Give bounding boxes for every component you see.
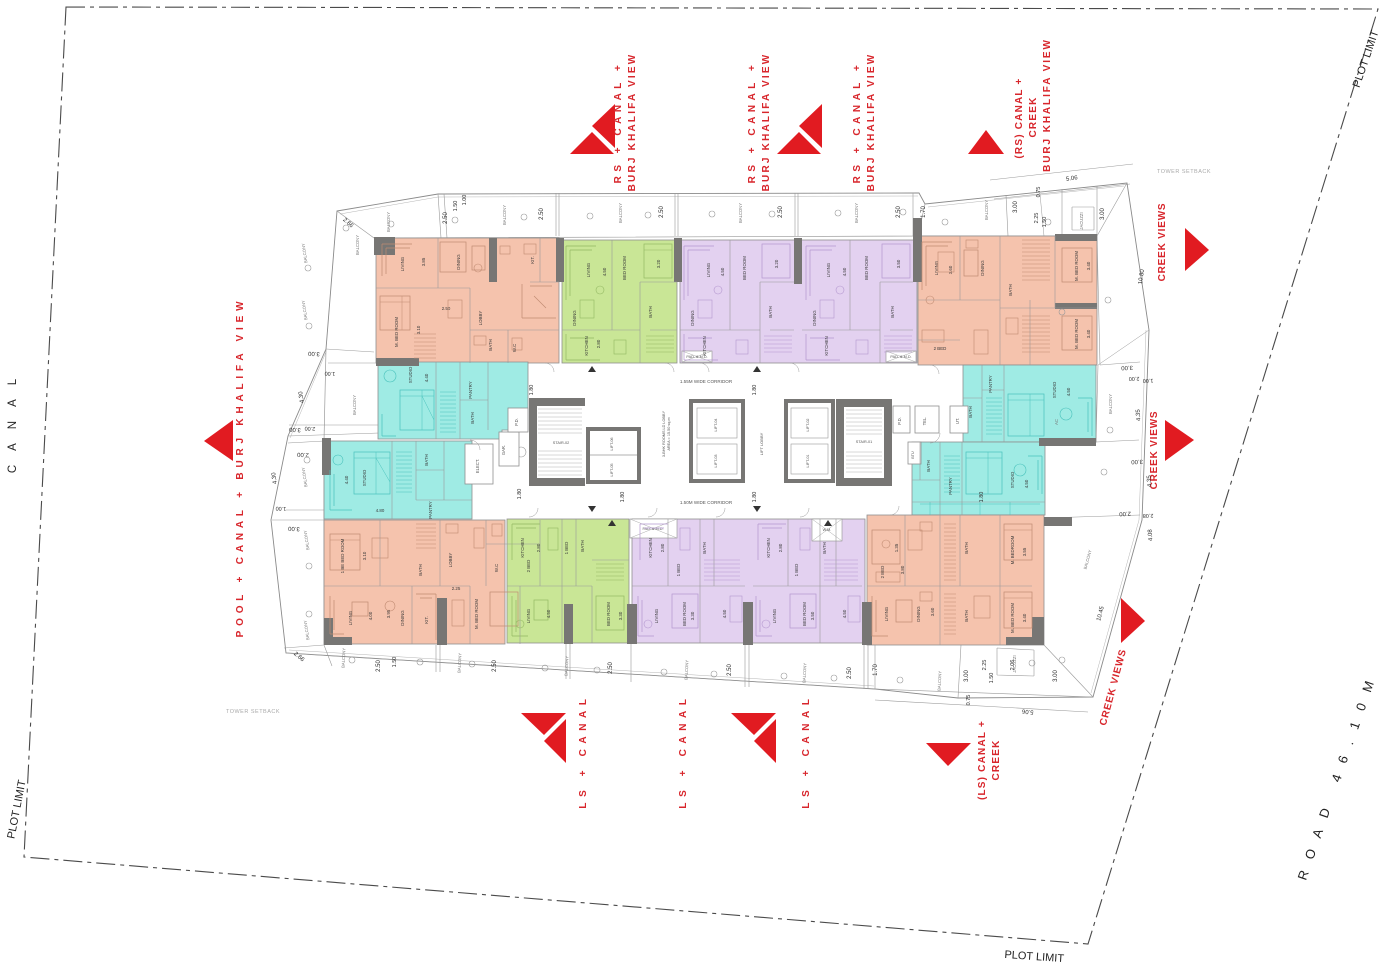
svg-text:2.50: 2.50 [659,206,665,218]
svg-text:UT.: UT. [955,418,960,424]
svg-text:4.08: 4.08 [1148,528,1155,541]
svg-text:DINING: DINING [916,606,921,622]
svg-text:2.00: 2.00 [305,425,316,431]
svg-text:2.25: 2.25 [982,660,988,671]
svg-text:4.50: 4.50 [546,609,551,618]
svg-text:1.50: 1.50 [989,673,995,684]
svg-text:BALCONY: BALCONY [683,660,689,680]
svg-text:RS + CANAL +: RS + CANAL + [852,61,863,184]
svg-text:LIVING: LIVING [772,608,777,623]
svg-text:4.35: 4.35 [1147,474,1154,487]
svg-text:BATH: BATH [648,306,653,317]
svg-text:STUDIO: STUDIO [362,469,367,486]
svg-text:1.55M WIDE CORRIDOR: 1.55M WIDE CORRIDOR [680,379,733,384]
svg-text:M. BED ROOM: M. BED ROOM [1074,251,1079,281]
svg-text:M. BED ROOM: M. BED ROOM [1010,603,1015,633]
svg-text:CREEK: CREEK [1028,96,1039,137]
svg-text:BATH: BATH [768,306,773,317]
svg-text:2 BED: 2 BED [526,560,531,573]
svg-text:BATH: BATH [890,306,895,317]
svg-text:M. BED ROOM: M. BED ROOM [474,599,479,629]
svg-text:4.50: 4.50 [842,609,847,618]
svg-text:LIVING: LIVING [884,606,889,621]
svg-text:M. BEDROOM: M. BEDROOM [1010,535,1015,564]
svg-text:M. BED ROOM: M. BED ROOM [394,317,399,347]
svg-text:4.50: 4.50 [722,609,727,618]
svg-text:1 BED: 1 BED [794,564,799,577]
svg-text:2.25: 2.25 [1034,213,1040,224]
svg-text:2.50: 2.50 [443,212,449,224]
svg-text:CANAL: CANAL [7,365,19,473]
svg-text:BURJ KHALIFA VIEW: BURJ KHALIFA VIEW [1042,38,1053,172]
svg-text:STAIR-02: STAIR-02 [553,441,569,445]
svg-text:3.40: 3.40 [1086,329,1091,338]
svg-text:1.50: 1.50 [453,201,459,212]
svg-text:GAR.: GAR. [501,445,506,455]
svg-text:3.00: 3.00 [1053,670,1059,682]
svg-text:LIFT LOBBY: LIFT LOBBY [759,432,764,455]
svg-text:LIVING: LIVING [826,262,831,277]
svg-text:RS + CANAL +: RS + CANAL + [613,61,624,184]
svg-text:STAIR-01: STAIR-01 [856,440,872,444]
svg-text:KIT.: KIT. [530,256,535,264]
svg-text:2.50: 2.50 [727,664,733,676]
svg-text:4.40: 4.40 [344,475,349,484]
svg-text:3.30: 3.30 [690,611,695,620]
svg-text:2.50: 2.50 [896,206,902,218]
svg-text:BATH: BATH [580,540,585,551]
svg-text:4.35: 4.35 [1136,408,1143,421]
svg-text:BALCONY: BALCONY [801,663,807,683]
svg-text:PAD. & M.D.: PAD. & M.D. [890,355,911,359]
svg-text:W.C: W.C [494,564,499,572]
svg-text:LOBBY: LOBBY [478,311,483,326]
svg-text:BALCONY: BALCONY [738,203,743,223]
svg-text:BATH: BATH [964,542,969,553]
svg-text:4.80: 4.80 [376,508,385,513]
svg-text:3.20: 3.20 [774,259,779,268]
svg-text:BATH: BATH [424,454,429,465]
svg-text:DINING: DINING [456,254,461,270]
svg-text:KITCHEN: KITCHEN [584,336,589,355]
svg-text:LIFT-04: LIFT-04 [714,418,718,431]
svg-text:POOL + CANAL + BURJ KHALIFA VI: POOL + CANAL + BURJ KHALIFA VIEW [235,297,246,638]
svg-text:3.60: 3.60 [930,607,935,616]
svg-text:W.M.: W.M. [823,528,832,532]
svg-text:STUDIO: STUDIO [408,366,413,383]
svg-text:DINING: DINING [980,260,985,276]
svg-text:DINING: DINING [812,310,817,326]
svg-text:2.25: 2.25 [452,586,461,591]
svg-text:1.80: 1.80 [979,492,985,503]
svg-text:LIVING: LIVING [654,608,659,623]
svg-text:4.50: 4.50 [1024,479,1029,488]
svg-text:M. BED ROOM: M. BED ROOM [1074,319,1079,349]
svg-text:PANTRY: PANTRY [468,381,473,398]
svg-text:4.40: 4.40 [424,373,429,382]
svg-text:1.00: 1.00 [1143,377,1154,383]
svg-text:3.40: 3.40 [1086,261,1091,270]
svg-text:1.00: 1.00 [462,195,468,206]
svg-text:1 BE BED ROOM: 1 BE BED ROOM [340,538,345,573]
svg-text:BATH: BATH [470,412,475,423]
svg-text:BALCONY: BALCONY [355,235,360,255]
svg-text:BURJ KHALIFA VIEW: BURJ KHALIFA VIEW [866,53,877,192]
svg-text:3.00: 3.00 [1130,458,1143,464]
svg-text:2.50: 2.50 [539,208,545,220]
svg-text:BED ROOM: BED ROOM [742,256,747,280]
svg-text:3.00: 3.00 [307,350,320,356]
svg-text:2.80: 2.80 [778,543,783,552]
svg-text:STUDIO: STUDIO [1010,471,1015,488]
svg-text:2.50: 2.50 [492,660,498,672]
svg-text:KIT.: KIT. [424,616,429,624]
svg-text:3.50: 3.50 [810,611,815,620]
svg-text:1.80: 1.80 [752,492,758,503]
svg-text:3.00: 3.00 [1100,208,1106,220]
svg-text:1.80: 1.80 [620,492,626,503]
svg-text:1.80: 1.80 [529,385,535,396]
svg-text:2.00: 2.00 [1118,510,1131,516]
svg-text:2.50: 2.50 [778,206,784,218]
svg-text:LIFT-02: LIFT-02 [806,418,810,431]
svg-text:BALCONY: BALCONY [1108,394,1113,414]
svg-text:BATH: BATH [418,564,423,575]
svg-text:3.55: 3.55 [1022,547,1027,556]
svg-text:BATH: BATH [964,610,969,621]
svg-text:PANTRY: PANTRY [428,501,433,518]
svg-text:4.50: 4.50 [720,267,725,276]
svg-text:BALCONY: BALCONY [563,656,569,676]
svg-text:JACUZZI: JACUZZI [1079,212,1084,229]
svg-text:JACUZZI: JACUZZI [1012,655,1017,672]
svg-text:BURJ KHALIFA VIEW: BURJ KHALIFA VIEW [761,53,772,192]
svg-text:BALCONY: BALCONY [618,203,623,223]
svg-text:3.00: 3.00 [288,426,301,432]
svg-text:1.35: 1.35 [894,543,899,552]
svg-text:3.00: 3.00 [1120,364,1133,370]
svg-text:BALCONY: BALCONY [502,205,507,225]
svg-text:BATH: BATH [968,406,973,417]
svg-text:2.50: 2.50 [608,662,614,674]
svg-text:KITCHEN: KITCHEN [648,538,653,557]
svg-text:5.06: 5.06 [1021,707,1034,714]
svg-text:3.40: 3.40 [1022,613,1027,622]
svg-text:W.C: W.C [512,344,517,352]
svg-text:LIFT-06: LIFT-06 [610,437,614,450]
svg-text:3.00: 3.00 [964,670,970,682]
svg-text:3.50: 3.50 [896,259,901,268]
svg-text:LIVING: LIVING [586,262,591,277]
svg-text:BED ROOM: BED ROOM [802,602,807,626]
svg-text:KITCHEN: KITCHEN [520,538,525,557]
svg-text:(LS) CANAL +: (LS) CANAL + [977,720,988,800]
svg-text:4.50: 4.50 [602,267,607,276]
svg-text:LIFT-01: LIFT-01 [806,454,810,467]
svg-text:LIFT-03: LIFT-03 [714,454,718,467]
svg-text:LIFT-05: LIFT-05 [610,463,614,476]
svg-text:3.30: 3.30 [618,611,623,620]
svg-text:TEL.: TEL. [922,417,927,426]
svg-text:3.20: 3.20 [656,259,661,268]
svg-text:3.00: 3.00 [1013,201,1019,213]
svg-text:BATH: BATH [822,542,827,553]
svg-text:KITCHEN: KITCHEN [702,336,707,355]
svg-text:4.50: 4.50 [842,267,847,276]
svg-text:LOBBY: LOBBY [448,553,453,568]
svg-text:3.85: 3.85 [421,257,426,266]
svg-text:BALCONY: BALCONY [340,648,346,668]
svg-text:1 BED: 1 BED [676,564,681,577]
svg-text:BURJ KHALIFA VIEW: BURJ KHALIFA VIEW [627,53,638,192]
svg-text:TOWER SETBACK: TOWER SETBACK [226,709,280,715]
svg-text:LIVING: LIVING [400,256,405,271]
svg-text:BALCONY: BALCONY [984,200,989,220]
svg-text:2.80: 2.80 [536,543,541,552]
svg-text:BALCONY: BALCONY [854,203,859,223]
svg-text:1.70: 1.70 [873,664,879,676]
svg-text:DINING: DINING [572,310,577,326]
svg-text:1.80: 1.80 [517,489,523,500]
svg-text:KITCHEN: KITCHEN [766,538,771,557]
svg-text:FAD. & M.D.: FAD. & M.D. [642,527,663,531]
svg-text:1 BED: 1 BED [564,542,569,555]
svg-text:DINING: DINING [690,310,695,326]
svg-text:3.60: 3.60 [948,265,953,274]
svg-text:LS + CANAL: LS + CANAL [801,693,812,808]
svg-text:2.50: 2.50 [442,306,451,311]
svg-text:BATH: BATH [702,542,707,553]
svg-text:1.00: 1.00 [325,370,336,376]
svg-text:1.70: 1.70 [921,206,927,218]
svg-text:PANTRY: PANTRY [988,375,993,392]
svg-text:BALCONY: BALCONY [456,653,462,673]
svg-text:1.80: 1.80 [752,385,758,396]
svg-text:2.80: 2.80 [596,339,601,348]
svg-text:1.50: 1.50 [392,657,398,668]
svg-text:AREA = 15.50 sq.m: AREA = 15.50 sq.m [667,417,671,450]
svg-text:LIVING: LIVING [526,608,531,623]
svg-text:4.00: 4.00 [368,611,373,620]
svg-text:3.10: 3.10 [416,325,421,334]
svg-text:2.00: 2.00 [296,451,309,457]
svg-text:0.75: 0.75 [966,695,972,706]
svg-text:1.00: 1.00 [276,505,287,511]
svg-text:PANTRY: PANTRY [948,477,953,494]
svg-text:3-BHK ROOMS LD LOBBY: 3-BHK ROOMS LD LOBBY [662,410,666,457]
svg-text:0.75: 0.75 [1036,187,1042,198]
svg-text:3.80: 3.80 [900,565,905,574]
svg-text:CREEK VIEWS: CREEK VIEWS [1157,203,1168,282]
svg-text:2.80: 2.80 [660,543,665,552]
svg-text:LIVING: LIVING [706,262,711,277]
svg-text:STUDIO: STUDIO [1052,381,1057,398]
svg-text:BED ROOM: BED ROOM [606,602,611,626]
svg-text:KITCHEN: KITCHEN [824,336,829,355]
svg-text:ELECT.: ELECT. [475,459,480,473]
svg-text:TOWER SETBACK: TOWER SETBACK [1157,169,1211,175]
svg-text:CREEK: CREEK [991,739,1002,780]
svg-text:3.10: 3.10 [362,551,367,560]
svg-text:LS + CANAL: LS + CANAL [578,693,589,808]
svg-text:2 BED: 2 BED [934,346,947,351]
svg-text:BATH: BATH [926,460,931,471]
svg-text:DINING: DINING [400,610,405,626]
svg-text:BED ROOM: BED ROOM [864,256,869,280]
svg-text:2.00: 2.00 [1129,375,1140,381]
svg-text:2.08: 2.08 [1143,512,1154,518]
svg-text:RS + CANAL +: RS + CANAL + [747,61,758,184]
svg-text:BED ROOM: BED ROOM [622,256,627,280]
svg-text:P.D.: P.D. [897,417,902,425]
svg-text:BALCONY: BALCONY [352,395,357,415]
svg-text:AC: AC [1054,419,1059,425]
svg-text:LS + CANAL: LS + CANAL [678,693,689,808]
svg-text:P.D.: P.D. [514,418,519,426]
svg-text:2.50: 2.50 [847,667,853,679]
svg-text:1.50M WIDE CORRIDOR: 1.50M WIDE CORRIDOR [680,500,733,505]
svg-text:BATH: BATH [1008,284,1013,295]
svg-text:BED ROOM: BED ROOM [682,602,687,626]
svg-text:4.50: 4.50 [1066,387,1071,396]
svg-text:BTU: BTU [911,451,915,459]
svg-text:3.00: 3.00 [287,525,300,531]
svg-text:2.50: 2.50 [376,660,382,672]
svg-text:BALCONY: BALCONY [936,671,942,691]
svg-text:LIVING: LIVING [348,610,353,625]
svg-text:BATH: BATH [488,339,493,350]
svg-text:(RS) CANAL +: (RS) CANAL + [1014,77,1025,158]
